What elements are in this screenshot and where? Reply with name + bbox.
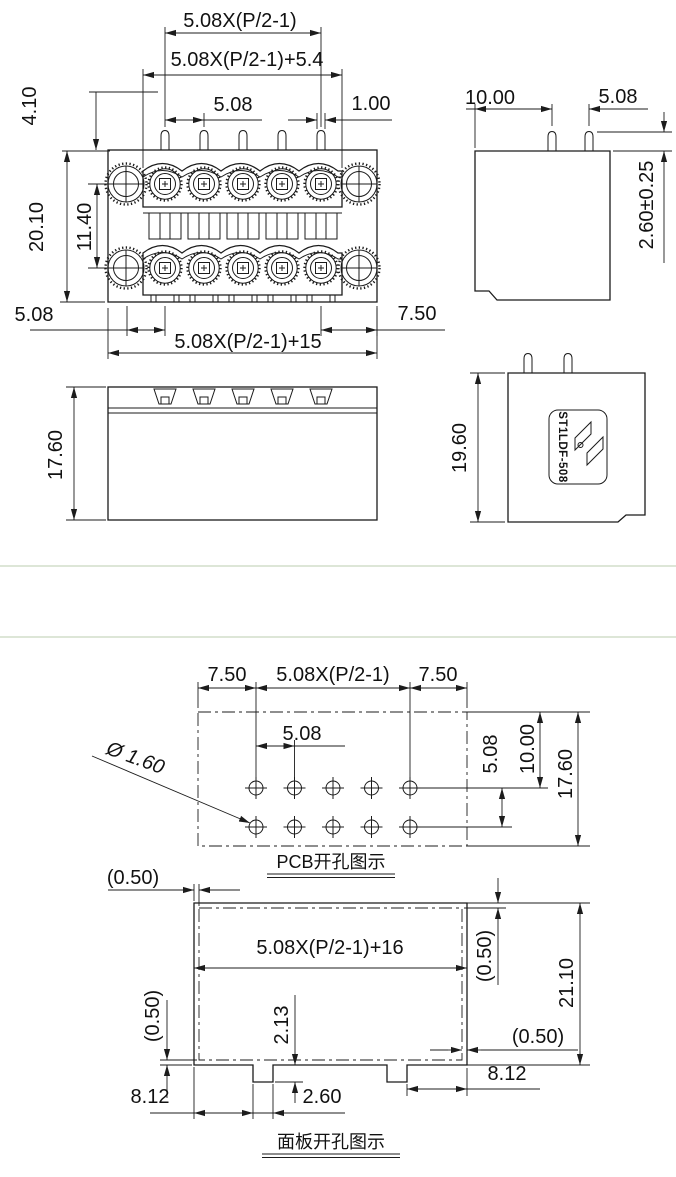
dim-side-pin-pitch: 5.08 (599, 86, 638, 108)
dim-panel-clearance-left: (0.50) (142, 990, 164, 1042)
dim-pcb-row-pitch: 5.08 (480, 735, 502, 774)
dim-front-overall-width: 5.08X(P/2-1)+15 (174, 331, 321, 353)
pcb-caption: PCB开孔图示 (276, 852, 385, 872)
dim-side-body-height: 19.60 (449, 423, 471, 473)
dim-panel-notch-offset-left: 8.12 (131, 1086, 170, 1108)
dim-panel-notch-depth: 2.13 (271, 1006, 293, 1045)
dim-front-span-plus: 5.08X(P/2-1)+5.4 (171, 49, 324, 71)
dim-front-row-spacing: 11.40 (74, 203, 96, 252)
dim-pcb-pin-span: 5.08X(P/2-1) (276, 664, 389, 686)
dim-front-right-offset: 7.50 (398, 303, 437, 325)
dim-pcb-edge-right: 7.50 (419, 664, 458, 686)
technical-drawing: 5.08X(P/2-1) 5.08X(P/2-1)+5.4 5.08 1.00 … (0, 0, 676, 1177)
dim-side-pin-protrusion: 2.60±0.25 (636, 161, 658, 250)
dim-pcb-row-offset: 10.00 (517, 724, 539, 774)
dim-side-flange-to-pin: 10.00 (465, 87, 515, 109)
panel-caption: 面板开孔图示 (277, 1132, 385, 1152)
dim-front-pin-width: 1.00 (352, 93, 391, 115)
dim-body-height: 17.60 (45, 430, 67, 480)
dim-panel-clearance-bottom: (0.50) (512, 1026, 564, 1048)
drawing-page: 5.08X(P/2-1) 5.08X(P/2-1)+5.4 5.08 1.00 … (0, 0, 676, 1177)
part-number-label: ST1LDF-508 (556, 411, 568, 483)
dim-front-pitch: 5.08 (214, 94, 253, 116)
dim-front-pin-offset: 4.10 (19, 87, 41, 126)
dim-panel-cutout-height: 21.10 (556, 958, 578, 1008)
dim-panel-clearance-top: (0.50) (107, 867, 159, 889)
dim-panel-notch-width: 2.60 (303, 1086, 342, 1108)
dim-front-pin-span: 5.08X(P/2-1) (183, 10, 296, 32)
dim-panel-cutout-width: 5.08X(P/2-1)+16 (256, 937, 403, 959)
dim-panel-clearance-right: (0.50) (474, 930, 496, 982)
dim-pcb-pitch: 5.08 (283, 723, 322, 745)
dim-front-overall-height: 20.10 (26, 202, 48, 252)
dim-front-left-offset: 5.08 (15, 304, 54, 326)
dim-panel-notch-offset-right: 8.12 (488, 1063, 527, 1085)
dim-pcb-edge-left: 7.50 (208, 664, 247, 686)
dim-pcb-overall-height: 17.60 (555, 749, 577, 799)
